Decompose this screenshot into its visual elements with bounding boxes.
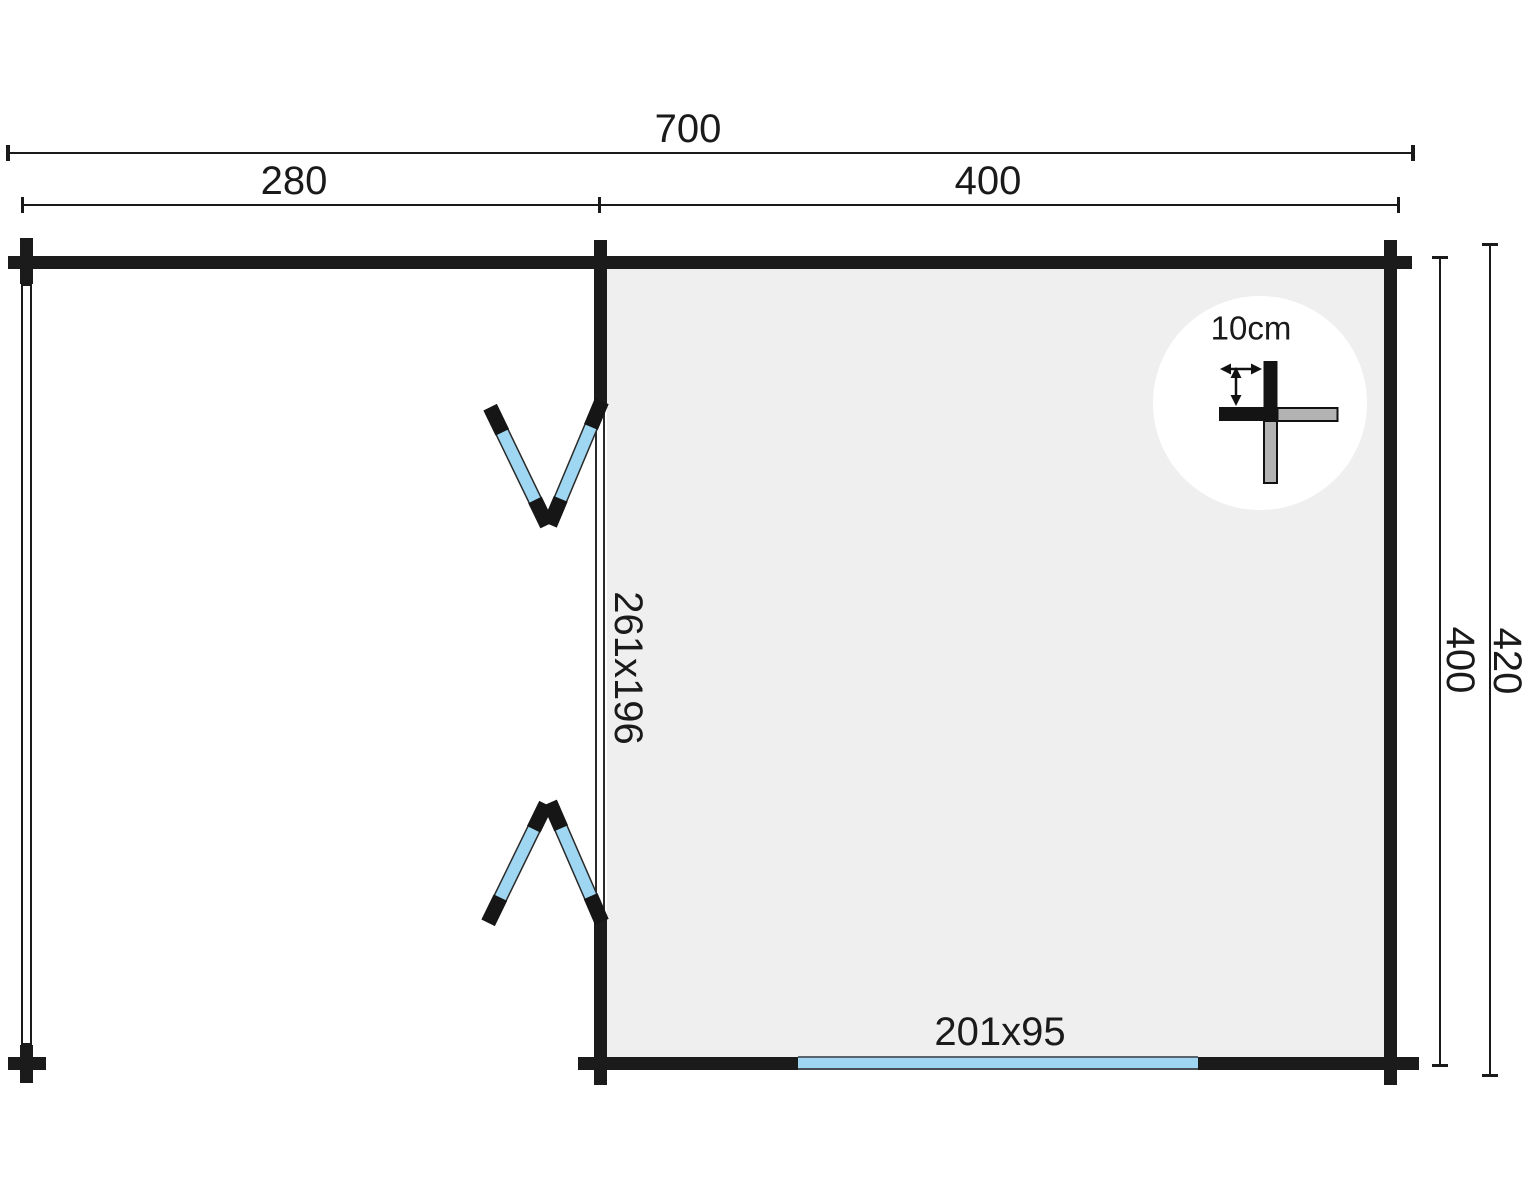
plan-overlay (0, 0, 1536, 1193)
door-leaf-cap (584, 893, 609, 925)
door-leaf-upper-left (483, 404, 554, 528)
door-size-label: 261x196 (608, 591, 648, 744)
door-leaf-cap (584, 398, 609, 430)
floor-plan-canvas: 700 280 400 400 420 (0, 0, 1536, 1193)
detail-beam-black-horizontal (1219, 407, 1278, 421)
door-leaf-cap (483, 404, 509, 436)
window-size-label: 201x95 (934, 1012, 1065, 1052)
wall-thickness-label: 10cm (1211, 312, 1292, 345)
detail-beam-gray-horizontal (1278, 408, 1338, 421)
detail-beam-gray-vertical (1264, 421, 1277, 483)
door-leaf-lower-right (543, 800, 609, 925)
door-leaf-upper-right (543, 398, 609, 527)
door-leaf-lower-left (481, 801, 552, 926)
door-leaf-cap (481, 894, 507, 926)
